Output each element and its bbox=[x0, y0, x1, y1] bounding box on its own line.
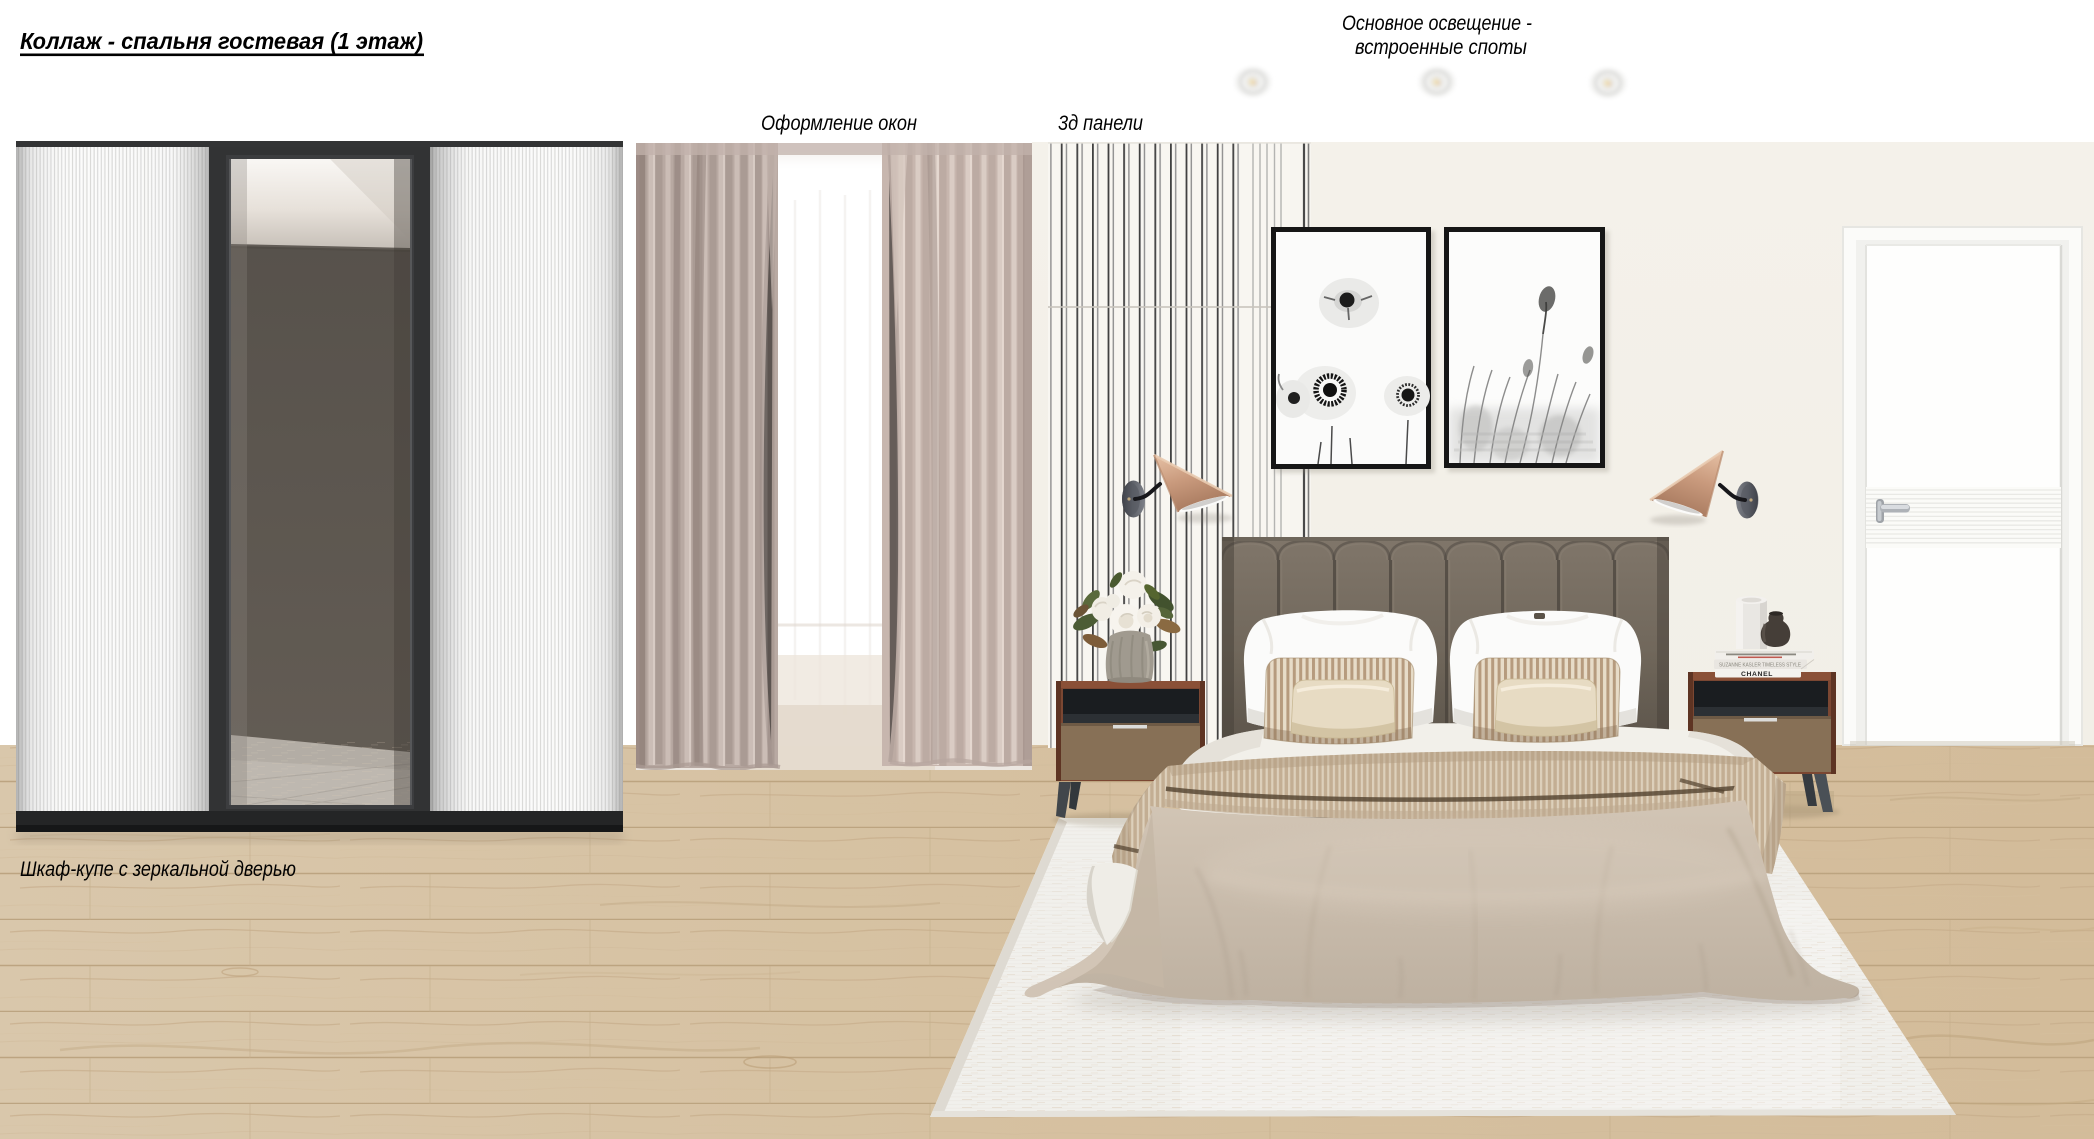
svg-text:CHANEL: CHANEL bbox=[1741, 671, 1773, 678]
svg-text:Шкаф-купе с зеркальной дверью: Шкаф-купе с зеркальной дверью bbox=[20, 858, 296, 881]
svg-text:Оформление окон: Оформление окон bbox=[761, 112, 917, 135]
svg-text:встроенные споты: встроенные споты bbox=[1355, 36, 1527, 59]
svg-text:3д панели: 3д панели bbox=[1058, 112, 1143, 135]
svg-text:Коллаж - спальня гостевая (1 э: Коллаж - спальня гостевая (1 этаж) bbox=[20, 28, 423, 54]
svg-text:Основное освещение -: Основное освещение - bbox=[1342, 12, 1532, 35]
svg-text:SUZANNE KASLER TIMELESS STYLE: SUZANNE KASLER TIMELESS STYLE bbox=[1719, 663, 1801, 669]
